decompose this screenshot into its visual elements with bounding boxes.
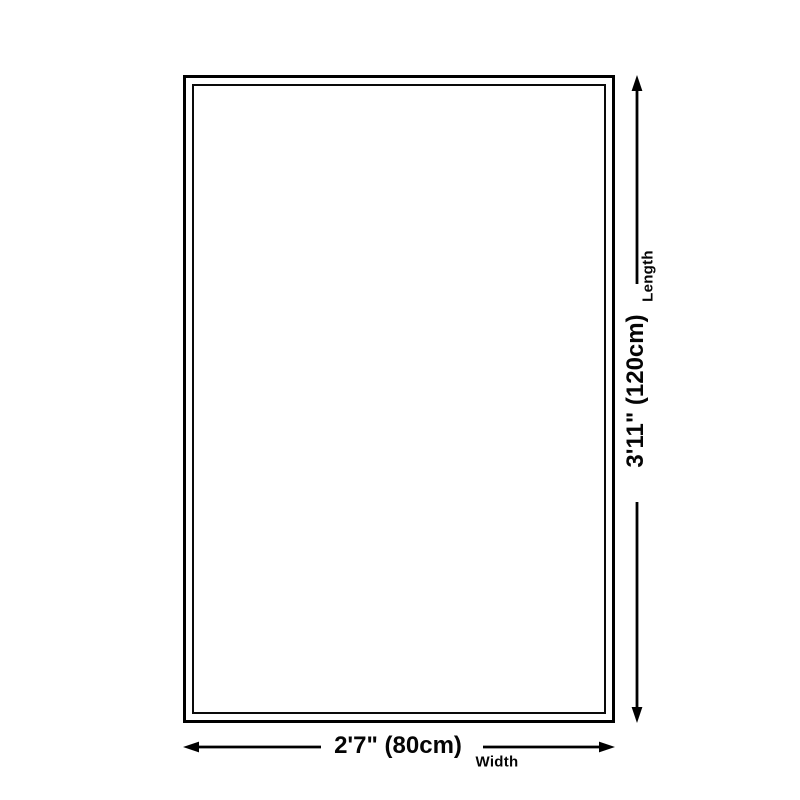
length-arrowhead-bottom (632, 707, 643, 723)
width-axis-label: Width (475, 755, 518, 770)
size-diagram: 2'7" (80cm) Width 3'11" (120cm) Length (0, 0, 800, 800)
width-arrowhead-left (183, 742, 199, 753)
length-dimension-label: 3'11" (120cm) (624, 314, 648, 467)
width-arrowhead-right (599, 742, 615, 753)
product-outline-inner (192, 84, 606, 714)
product-outline-outer (183, 75, 615, 723)
length-axis-label: Length (641, 250, 656, 302)
width-dimension-label: 2'7" (80cm) (334, 734, 462, 758)
length-arrowhead-top (632, 75, 643, 91)
